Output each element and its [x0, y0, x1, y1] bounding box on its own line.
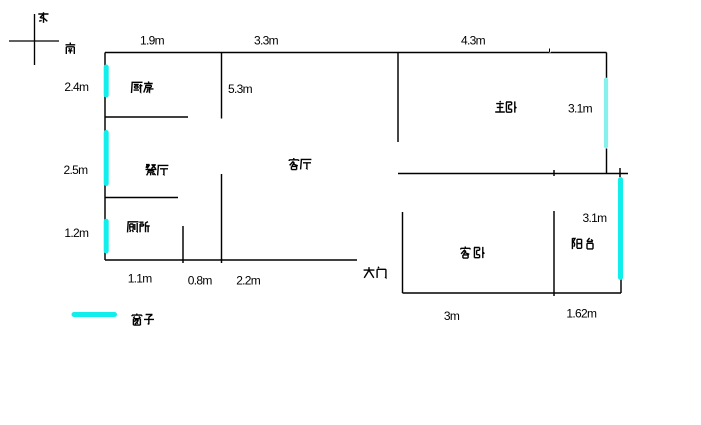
- svg-text:2.2m: 2.2m: [236, 274, 261, 288]
- svg-text:1.62m: 1.62m: [566, 307, 597, 321]
- svg-text:2.5m: 2.5m: [64, 163, 89, 177]
- svg-text:3.3m: 3.3m: [254, 34, 279, 48]
- svg-text:3.1m: 3.1m: [568, 102, 593, 116]
- svg-text:1.1m: 1.1m: [128, 272, 153, 286]
- svg-text:4.3m: 4.3m: [461, 34, 486, 48]
- svg-text:5.3m: 5.3m: [228, 82, 253, 96]
- svg-text:3m: 3m: [444, 309, 460, 323]
- svg-text:3.1m: 3.1m: [583, 211, 608, 225]
- svg-text:1.2m: 1.2m: [64, 226, 89, 240]
- svg-text:1.9m: 1.9m: [140, 34, 165, 48]
- svg-text:2.4m: 2.4m: [64, 80, 89, 94]
- svg-text:0.8m: 0.8m: [188, 274, 213, 288]
